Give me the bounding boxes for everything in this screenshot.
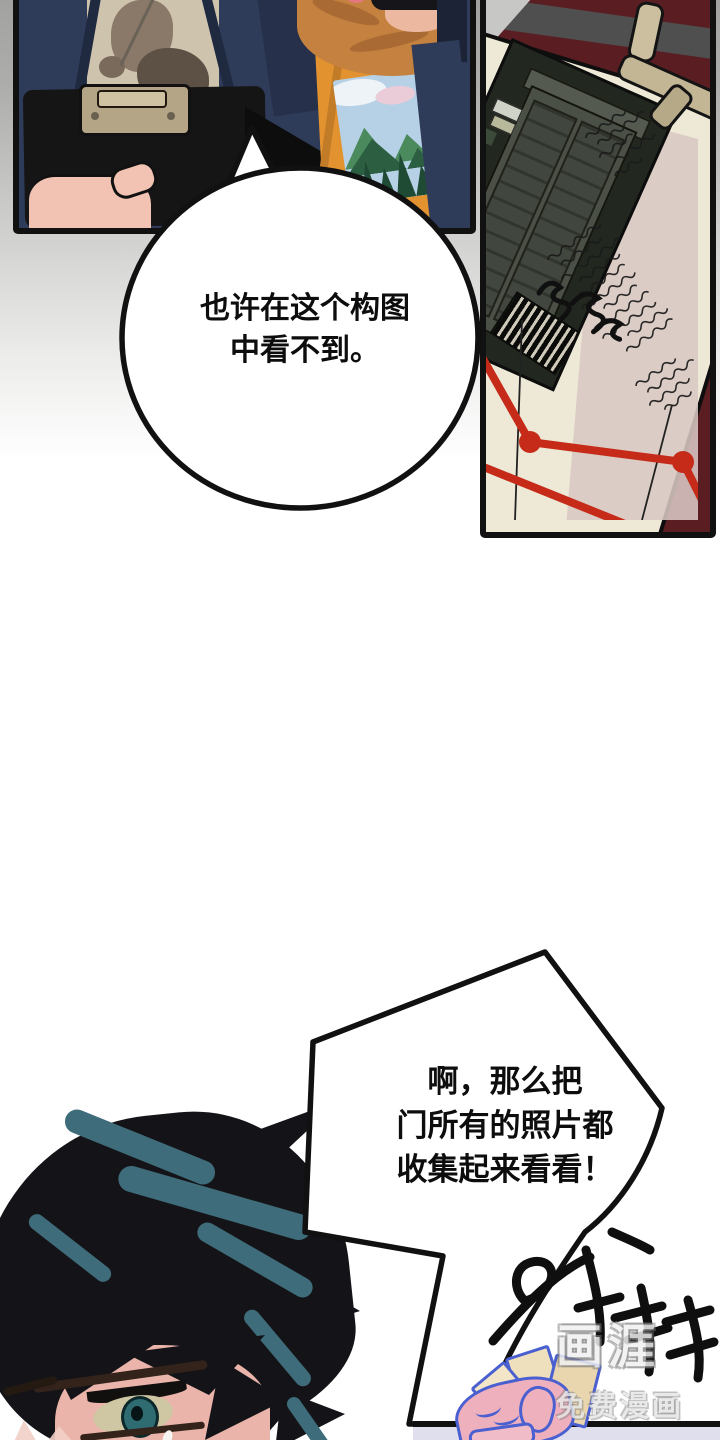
bubble1-line2: 中看不到。 bbox=[130, 330, 480, 372]
panel-top-right bbox=[480, 0, 716, 538]
evidence-scribbles bbox=[486, 0, 698, 520]
clip-screw bbox=[91, 112, 99, 120]
bubble2-line3: 收集起来看看！ bbox=[355, 1148, 655, 1192]
speech-bubble-1-text: 也许在这个构图 中看不到。 bbox=[130, 288, 480, 372]
comic-page: NNY DAY bbox=[0, 0, 720, 1440]
watermark-logo: 画涯 bbox=[556, 1308, 720, 1377]
bubble2-line1: 啊，那么把 bbox=[355, 1060, 655, 1104]
speech-bubble-2-text: 啊，那么把 门所有的照片都 收集起来看看！ bbox=[355, 1060, 655, 1192]
red-pin bbox=[519, 431, 541, 453]
watermark-subtitle: 免费漫画 bbox=[556, 1383, 720, 1425]
bubble1-line1: 也许在这个构图 bbox=[130, 288, 480, 330]
bubble2-line2: 门所有的照片都 bbox=[355, 1104, 655, 1148]
eye-pupil bbox=[131, 1406, 143, 1421]
watermark: 画涯 免费漫画 bbox=[556, 1308, 720, 1425]
red-pin bbox=[672, 451, 694, 473]
